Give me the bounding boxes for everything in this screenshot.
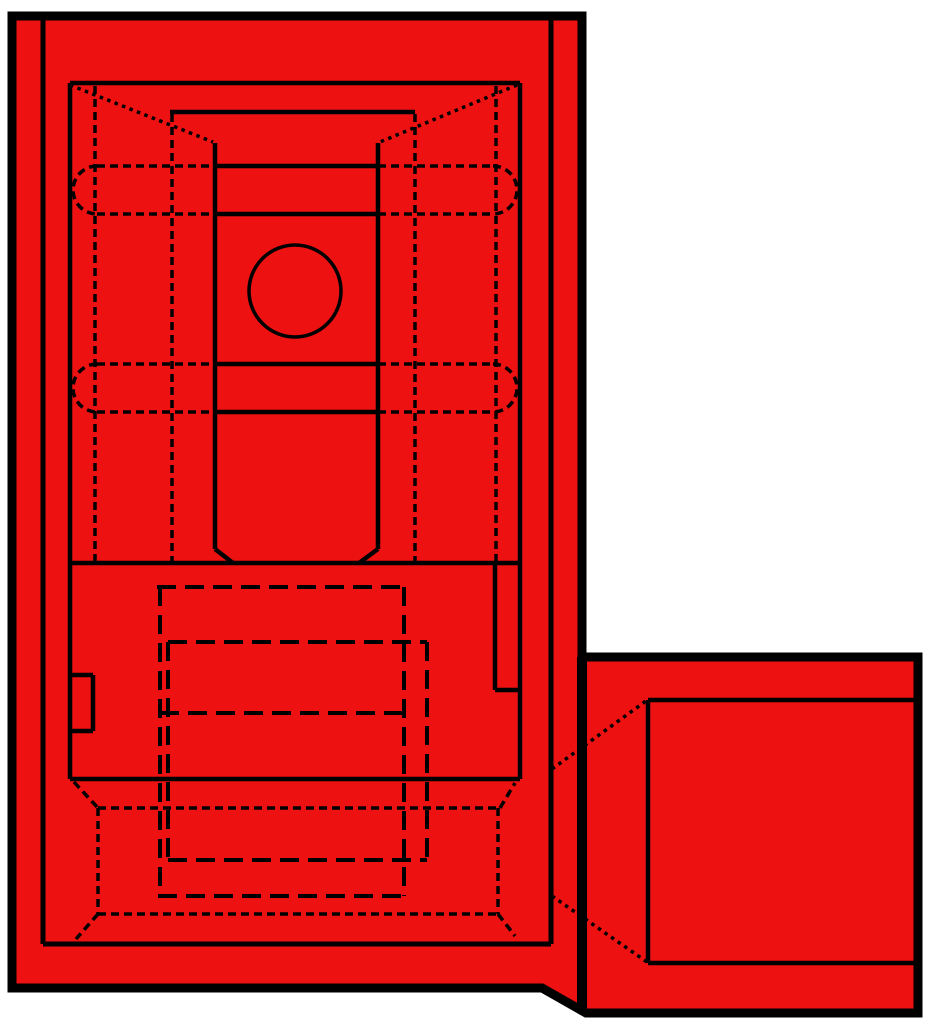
terminal-drawing-page bbox=[0, 0, 936, 1024]
terminal-drawing-svg bbox=[0, 0, 936, 1024]
terminal-body-silhouette bbox=[12, 16, 918, 1013]
